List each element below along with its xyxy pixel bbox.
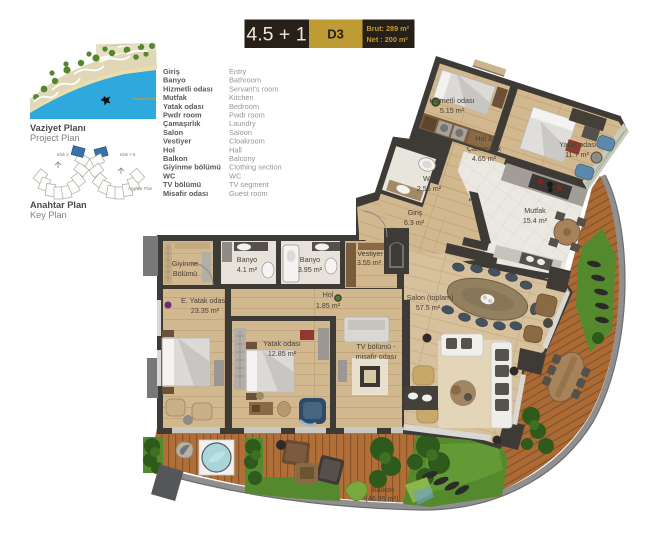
svg-text:Misafir odası: Misafir odası <box>163 189 208 198</box>
svg-text:4.1 m²: 4.1 m² <box>237 265 258 274</box>
svg-text:6.3 m²: 6.3 m² <box>404 218 425 227</box>
svg-text:Hizmetli odası: Hizmetli odası <box>429 96 474 105</box>
svg-text:Laundry: Laundry <box>229 119 256 128</box>
svg-text:Mutfak: Mutfak <box>163 93 188 102</box>
svg-text:Banyo: Banyo <box>163 76 186 85</box>
svg-text:Salon (toplam): Salon (toplam) <box>407 293 454 302</box>
svg-text:15.4 m²: 15.4 m² <box>523 216 548 225</box>
svg-text:1.85 m²: 1.85 m² <box>316 301 341 310</box>
svg-text:Key Plan: Key Plan <box>30 210 67 220</box>
svg-text:Giyinme bölümü: Giyinme bölümü <box>163 163 221 172</box>
svg-text:Banyo: Banyo <box>237 255 257 264</box>
svg-text:Brut: 289 m²: Brut: 289 m² <box>367 24 410 33</box>
svg-text:Bölümü: Bölümü <box>173 269 197 278</box>
svg-text:E. Yatak odası: E. Yatak odası <box>181 296 227 305</box>
svg-text:4.65 m²: 4.65 m² <box>472 154 497 163</box>
svg-text:Giyinme: Giyinme <box>172 259 198 268</box>
svg-text:Anahtar Plan: Anahtar Plan <box>30 200 87 210</box>
svg-text:57.5 m²: 57.5 m² <box>416 303 441 312</box>
svg-text:Giriş: Giriş <box>408 208 423 217</box>
svg-text:23.35 m²: 23.35 m² <box>191 306 220 315</box>
svg-text:Project Plan: Project Plan <box>30 133 80 143</box>
svg-text:5.15 m²: 5.15 m² <box>440 106 465 115</box>
svg-text:Giriş: Giriş <box>163 67 180 76</box>
svg-text:misafir odası: misafir odası <box>356 352 397 361</box>
svg-text:2.55 m²: 2.55 m² <box>417 184 442 193</box>
svg-text:3.55 m²: 3.55 m² <box>357 258 382 267</box>
svg-text:Balcony: Balcony <box>229 154 256 163</box>
svg-text:3.95 m²: 3.95 m² <box>298 265 323 274</box>
svg-text:4.5 + 1: 4.5 + 1 <box>246 24 306 46</box>
svg-text:Blok 3: Blok 3 <box>57 152 69 157</box>
svg-text:Yatak odası: Yatak odası <box>559 140 596 149</box>
svg-text:Vestiyer: Vestiyer <box>163 137 191 146</box>
svg-text:Hol &: Hol & <box>475 134 493 143</box>
svg-text:Çamaşırlık: Çamaşırlık <box>163 119 201 128</box>
svg-text:Balkon: Balkon <box>163 154 188 163</box>
svg-text:Hol: Hol <box>323 290 334 299</box>
svg-text:(46.95 m²): (46.95 m²) <box>365 494 398 503</box>
svg-text:TV segment: TV segment <box>229 180 269 189</box>
svg-text:WC: WC <box>423 174 435 183</box>
svg-text:Salon: Salon <box>163 128 184 137</box>
svg-text:Clothing section: Clothing section <box>229 163 282 172</box>
svg-text:Guest room: Guest room <box>229 189 268 198</box>
svg-text:Vestiyer: Vestiyer <box>357 249 383 258</box>
svg-text:Vaziyet Plan: Vaziyet Plan <box>133 96 157 101</box>
svg-text:Cloakroom: Cloakroom <box>229 137 265 146</box>
svg-text:Bedroom: Bedroom <box>229 102 259 111</box>
svg-text:Pwdr room: Pwdr room <box>229 111 265 120</box>
svg-text:TV bölümü -: TV bölümü - <box>356 342 396 351</box>
svg-text:12.85 m²: 12.85 m² <box>268 349 297 358</box>
svg-text:Mutfak: Mutfak <box>524 206 546 215</box>
svg-text:WC: WC <box>163 171 176 180</box>
svg-text:Hizmetli odası: Hizmetli odası <box>163 84 213 93</box>
svg-text:11.7 m²: 11.7 m² <box>565 150 589 159</box>
svg-text:Servant's room: Servant's room <box>229 84 278 93</box>
svg-text:WC: WC <box>229 171 242 180</box>
svg-text:D3: D3 <box>327 27 344 42</box>
svg-text:Hall: Hall <box>229 145 242 154</box>
svg-text:Çamaşırlık: Çamaşırlık <box>467 144 502 153</box>
svg-text:Banyo: Banyo <box>300 255 320 264</box>
svg-text:Yatak odası: Yatak odası <box>163 102 204 111</box>
svg-text:Vaziyet Planı: Vaziyet Planı <box>30 123 86 133</box>
svg-text:Entry: Entry <box>229 67 247 76</box>
svg-text:Bathroom: Bathroom <box>229 76 261 85</box>
svg-text:Saloon: Saloon <box>229 128 252 137</box>
svg-text:Anahtar Plan: Anahtar Plan <box>128 186 153 191</box>
svg-text:Pwdr room: Pwdr room <box>163 111 202 120</box>
svg-text:Hol: Hol <box>163 145 175 154</box>
svg-text:Net : 200 m²: Net : 200 m² <box>367 35 409 44</box>
svg-text:Balkon: Balkon <box>372 485 394 494</box>
svg-text:Kitchen: Kitchen <box>229 93 254 102</box>
svg-text:Yatak odası: Yatak odası <box>263 339 300 348</box>
svg-text:TV bölümü: TV bölümü <box>163 180 202 189</box>
svg-text:Blok 7-8: Blok 7-8 <box>120 152 136 157</box>
